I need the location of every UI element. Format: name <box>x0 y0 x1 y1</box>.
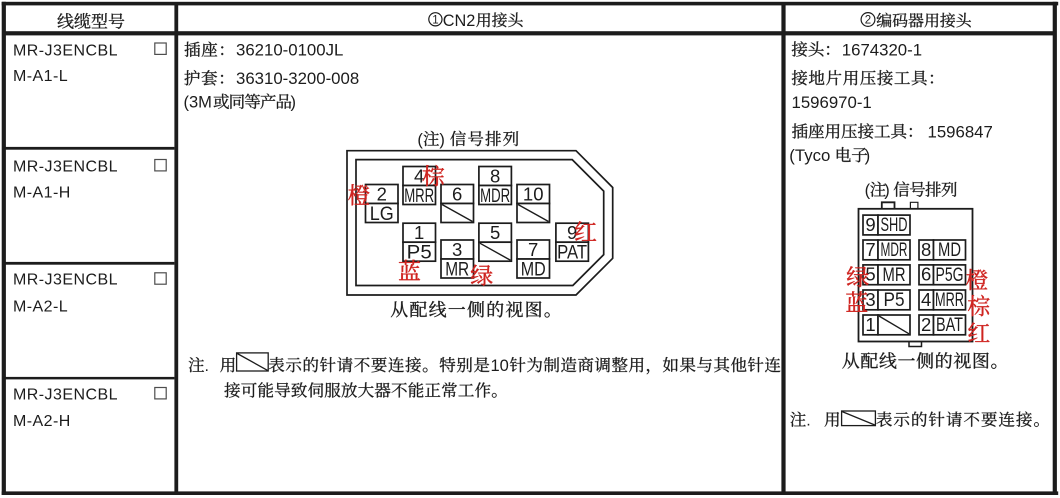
svg-text:BAT: BAT <box>936 314 963 336</box>
svg-text:7: 7 <box>865 239 875 260</box>
svg-text:8: 8 <box>490 165 500 186</box>
svg-text:MD: MD <box>521 258 546 280</box>
svg-text:5: 5 <box>490 222 500 243</box>
svg-text:1596847: 1596847 <box>928 122 993 141</box>
svg-text:1: 1 <box>865 314 875 335</box>
svg-text:1674320-1: 1674320-1 <box>842 40 922 59</box>
svg-text:1596970-1: 1596970-1 <box>792 93 872 112</box>
svg-text:P5: P5 <box>884 289 905 311</box>
svg-text:MR: MR <box>445 258 469 280</box>
svg-text:MRR: MRR <box>404 185 434 207</box>
svg-text:3: 3 <box>865 289 875 310</box>
svg-text:.: . <box>806 413 810 430</box>
svg-text:9: 9 <box>865 214 875 235</box>
svg-text:36210-0100JL: 36210-0100JL <box>236 41 343 60</box>
svg-text:3: 3 <box>452 239 462 260</box>
svg-text:MR-J3ENCBL: MR-J3ENCBL <box>13 159 118 176</box>
svg-text:(: ( <box>417 131 423 149</box>
svg-text:(Tyco: (Tyco <box>789 146 830 165</box>
svg-text:MR-J3ENCBL: MR-J3ENCBL <box>13 272 118 289</box>
svg-text:SHD: SHD <box>881 214 908 236</box>
svg-text:MDR: MDR <box>480 185 510 207</box>
svg-text:6: 6 <box>452 183 462 204</box>
svg-text:36310-3200-008: 36310-3200-008 <box>236 69 359 88</box>
svg-text:): ) <box>439 131 445 149</box>
svg-text:): ) <box>865 146 871 165</box>
svg-text:P5: P5 <box>407 242 432 264</box>
svg-text:MR-J3ENCBL: MR-J3ENCBL <box>13 43 118 60</box>
svg-text:7: 7 <box>528 239 538 260</box>
svg-text:M-A1-H: M-A1-H <box>13 185 71 202</box>
svg-text:10: 10 <box>523 183 544 204</box>
svg-text:1: 1 <box>414 222 424 243</box>
svg-text:): ) <box>291 94 297 112</box>
svg-text:8: 8 <box>921 239 931 260</box>
svg-text:.: . <box>205 358 209 375</box>
svg-text:LG: LG <box>370 203 394 225</box>
svg-text:M-A2-L: M-A2-L <box>13 299 68 316</box>
svg-text:2: 2 <box>377 183 387 204</box>
svg-text:M-A1-L: M-A1-L <box>13 68 68 85</box>
svg-text:P5G: P5G <box>936 264 964 286</box>
svg-text:): ) <box>884 182 890 200</box>
svg-text:MR-J3ENCBL: MR-J3ENCBL <box>13 387 118 404</box>
svg-text:MDR: MDR <box>881 239 908 261</box>
svg-text:4: 4 <box>921 289 931 310</box>
svg-text:(3M: (3M <box>184 94 212 112</box>
svg-text:M-A2-H: M-A2-H <box>13 413 71 430</box>
svg-text:PAT: PAT <box>557 242 587 264</box>
svg-text:1: 1 <box>432 14 438 26</box>
svg-text:MRR: MRR <box>935 289 964 311</box>
svg-text:6: 6 <box>921 264 931 285</box>
svg-text:2: 2 <box>921 314 931 335</box>
svg-text:MD: MD <box>938 239 961 261</box>
svg-text:MR: MR <box>883 264 906 286</box>
svg-text:10: 10 <box>491 357 509 375</box>
svg-text:4: 4 <box>414 165 424 186</box>
svg-text:CN2: CN2 <box>443 12 476 30</box>
svg-text:(: ( <box>865 182 871 200</box>
svg-text:2: 2 <box>865 15 871 27</box>
